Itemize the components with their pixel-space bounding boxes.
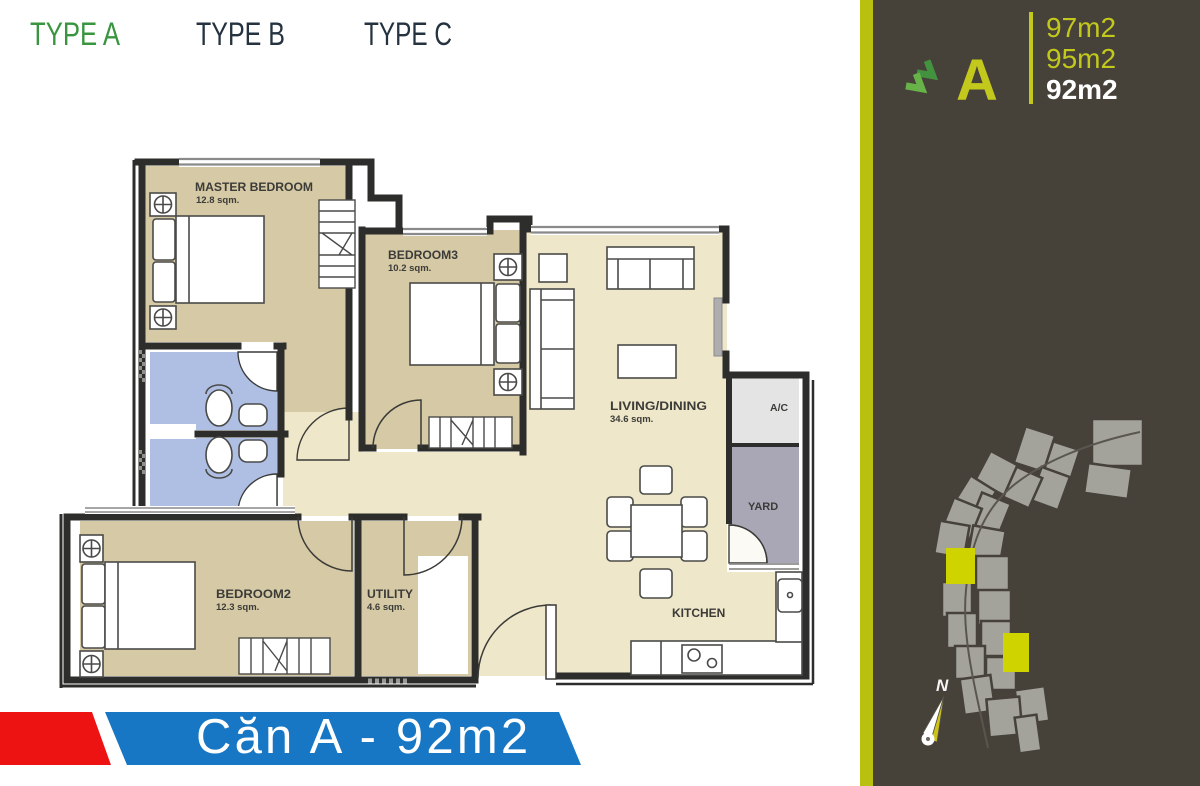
svg-text:BEDROOM2: BEDROOM2 [216,587,291,601]
svg-text:YARD: YARD [748,501,778,513]
svg-text:10.2 sqm.: 10.2 sqm. [388,263,431,274]
svg-text:TYPE A: TYPE A [30,16,121,52]
svg-text:TYPE C: TYPE C [364,16,452,52]
svg-text:97m2: 97m2 [1046,12,1116,43]
svg-text:12.3 sqm.: 12.3 sqm. [216,602,259,613]
svg-text:BEDROOM3: BEDROOM3 [388,248,458,262]
svg-text:Căn A - 92m2: Căn A - 92m2 [196,710,531,764]
svg-text:A/C: A/C [770,402,789,414]
svg-text:LIVING/DINING: LIVING/DINING [610,399,707,413]
svg-text:UTILITY: UTILITY [367,587,413,601]
svg-text:KITCHEN: KITCHEN [672,606,725,620]
svg-text:MASTER BEDROOM: MASTER BEDROOM [195,180,313,194]
svg-text:12.8 sqm.: 12.8 sqm. [196,195,239,206]
svg-text:34.6 sqm.: 34.6 sqm. [610,414,653,425]
svg-text:95m2: 95m2 [1046,43,1116,74]
svg-text:A: A [956,48,998,113]
svg-text:92m2: 92m2 [1046,74,1118,105]
svg-text:4.6 sqm.: 4.6 sqm. [367,602,405,613]
svg-text:N: N [936,676,949,695]
svg-text:TYPE B: TYPE B [196,16,285,52]
